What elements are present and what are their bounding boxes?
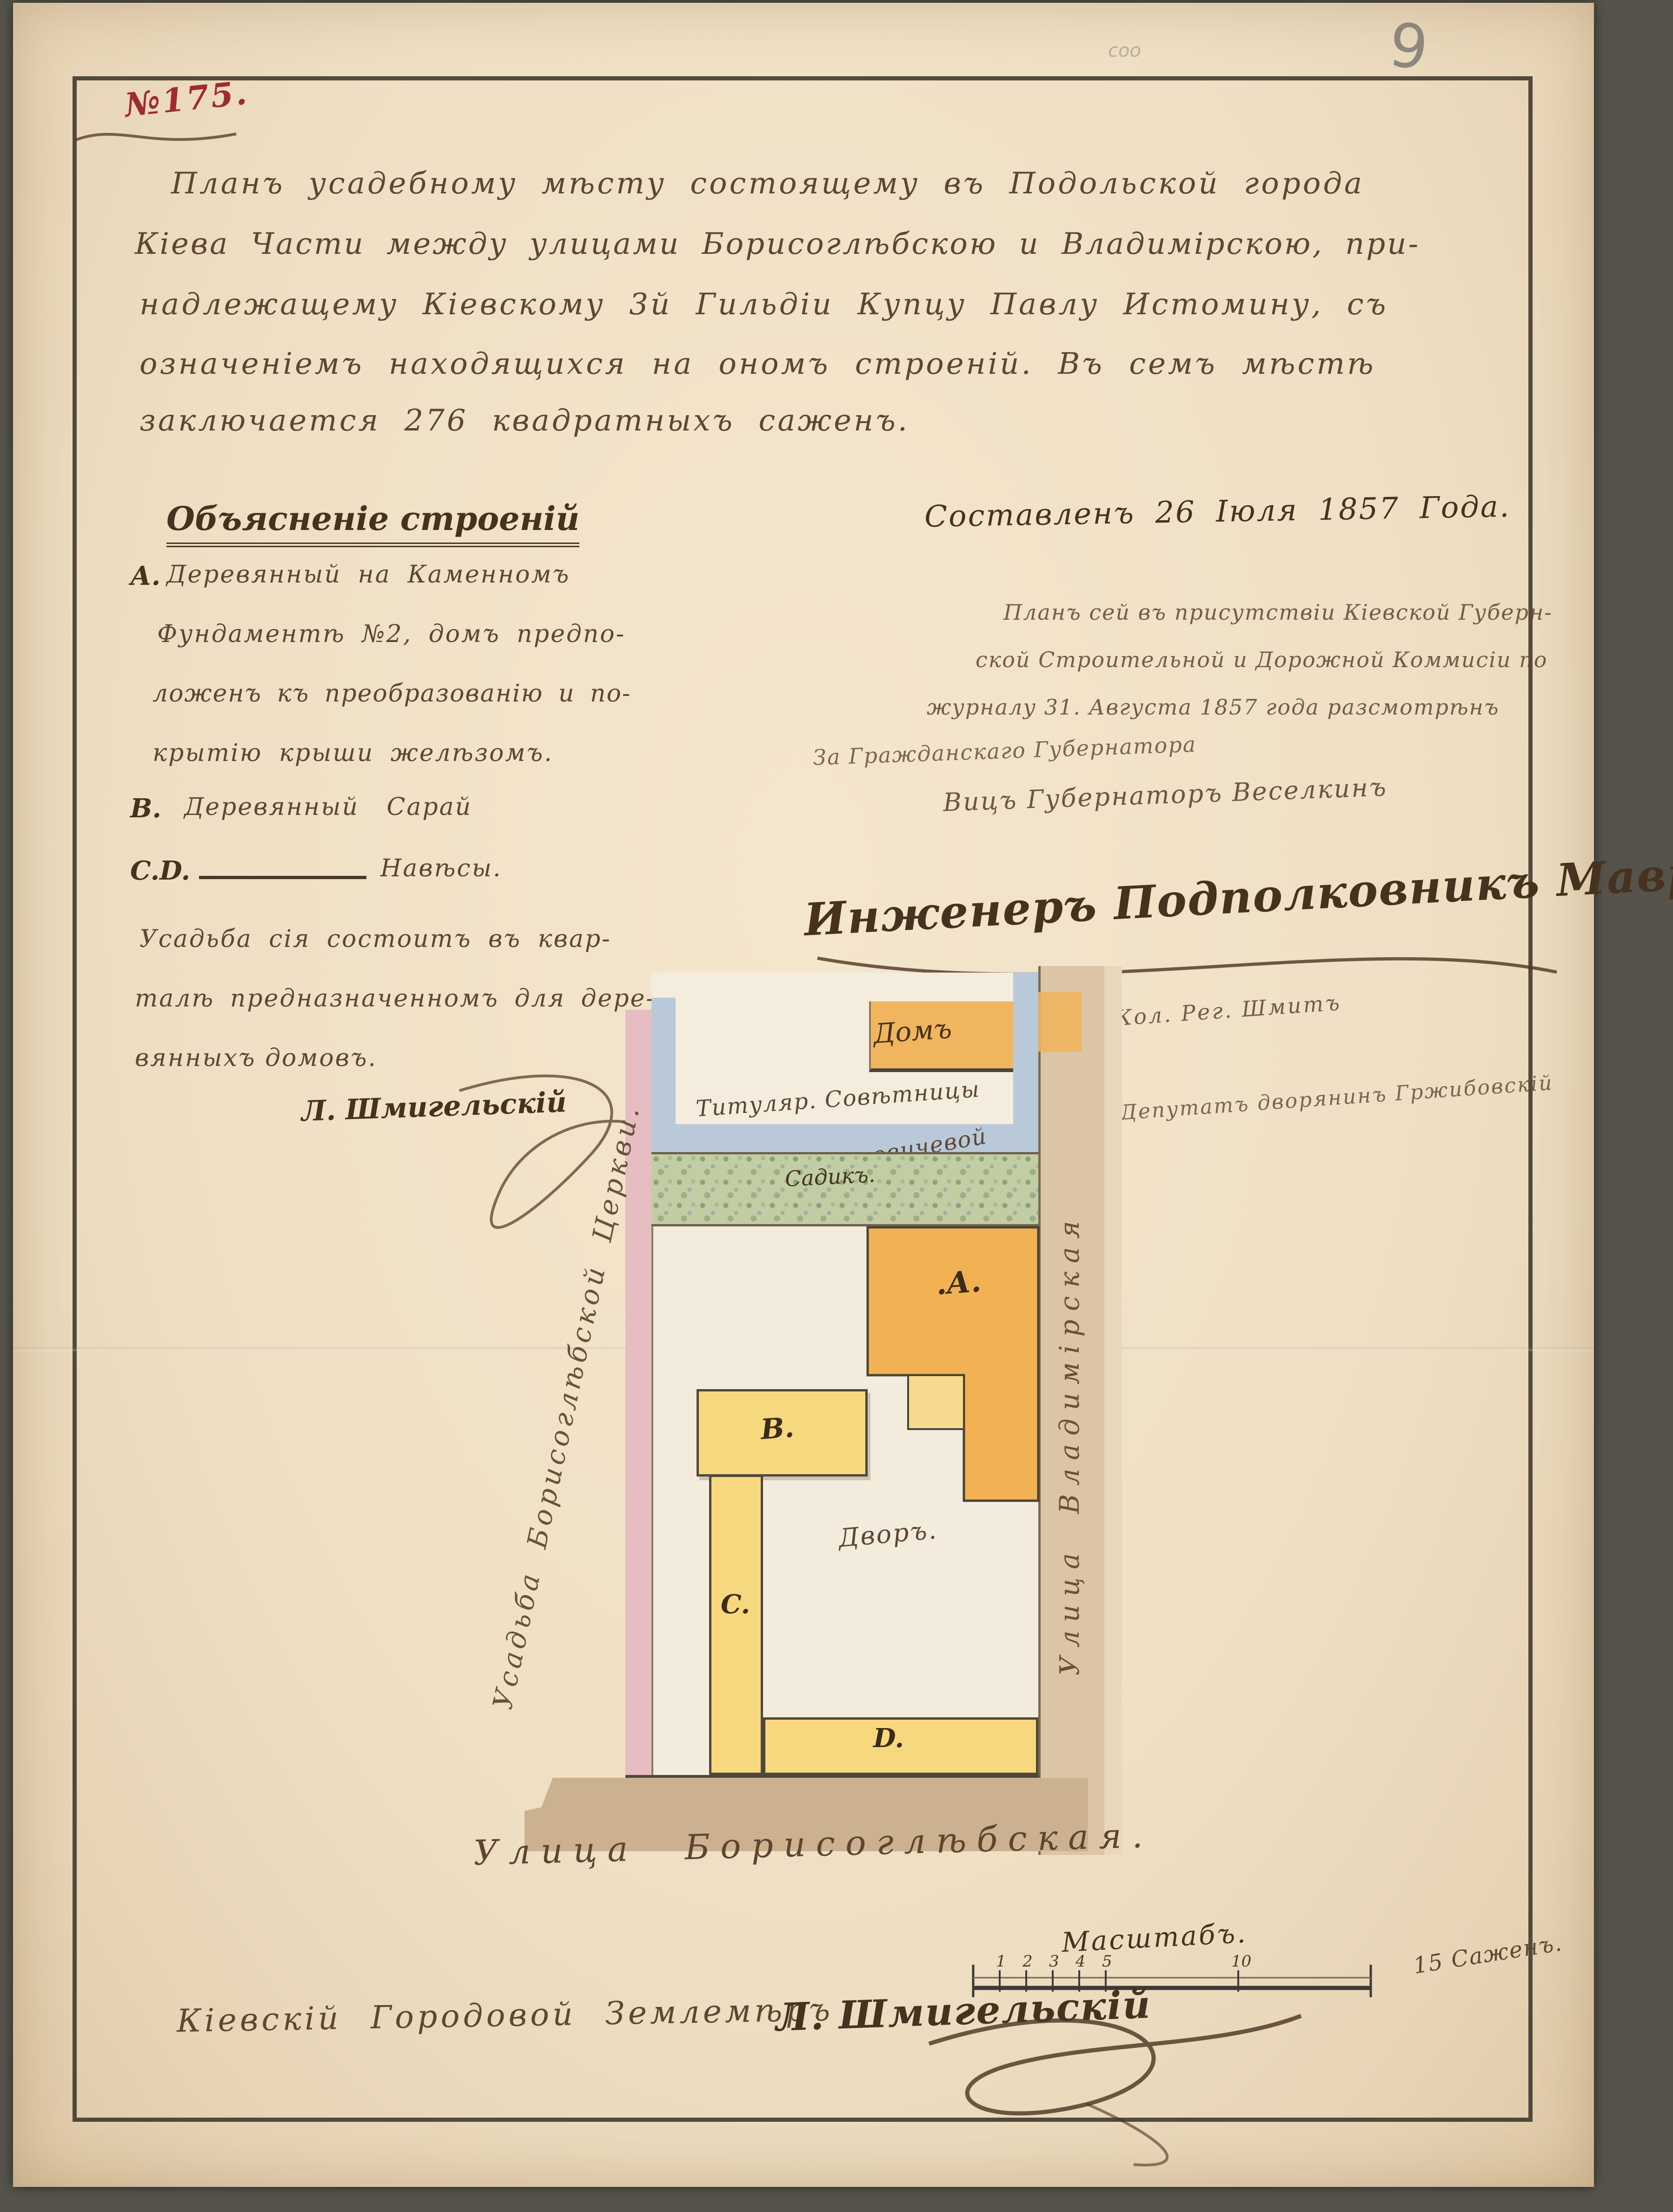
scale-tick: 5 bbox=[1102, 1952, 1112, 1971]
scale-tick: 2 bbox=[1022, 1952, 1033, 1971]
neighbor-border-right bbox=[1013, 973, 1038, 1152]
legend-a-marker: А. bbox=[130, 561, 160, 591]
review-line: журналу 31. Августа 1857 года разсмотрѣн… bbox=[927, 695, 1499, 720]
title-line: заключается 276 квадратныхъ саженъ. bbox=[139, 404, 910, 438]
legend-note-line: Усадьба сія состоитъ въ квар- bbox=[139, 925, 611, 953]
building-c bbox=[709, 1475, 763, 1775]
street-vladimirskaya-label: Улица Владимірская bbox=[1054, 1067, 1096, 1821]
register-number-flourish bbox=[69, 120, 246, 157]
scale-tick: 4 bbox=[1075, 1952, 1086, 1971]
building-a-label: .А. bbox=[935, 1264, 983, 1302]
building-c-label: C. bbox=[721, 1589, 750, 1620]
legend-cd-marker: C.D. bbox=[130, 855, 190, 886]
scale-tick: 1 bbox=[996, 1952, 1006, 1971]
legend-a-line: ложенъ къ преобразованію и по- bbox=[153, 680, 631, 708]
legend-b-text: Деревянный Сарай bbox=[184, 793, 472, 821]
building-d-label: D. bbox=[873, 1723, 904, 1754]
review-line: Планъ сей въ присутствіи Кіевской Губерн… bbox=[1003, 600, 1553, 625]
title-line: означеніемъ находящихся на ономъ строені… bbox=[139, 347, 1376, 381]
title-line: надлежащему Кіевскому 3й Гильдіи Купцу П… bbox=[139, 287, 1388, 322]
plot-bottom-line bbox=[625, 1775, 1039, 1778]
street-vladimirskaya-band-outer bbox=[1104, 966, 1122, 1855]
legend-b-marker: В. bbox=[130, 793, 161, 824]
legend-cd-text: Навѣсы. bbox=[380, 854, 502, 882]
surveyor-paraph bbox=[873, 1997, 1338, 2183]
legend-a-line: Деревянный на Каменномъ bbox=[166, 561, 570, 589]
scale-tick: 10 bbox=[1231, 1952, 1251, 1971]
title-line: Планъ усадебному мѣсту состоящему въ Под… bbox=[171, 166, 1364, 201]
garden-label: Садикъ. bbox=[784, 1162, 876, 1192]
building-b-label: В. bbox=[760, 1411, 795, 1446]
legend-a-line: крытію крыши желѣзомъ. bbox=[153, 739, 553, 767]
legend-a-line: Фундаментѣ №2, домъ предпо- bbox=[157, 620, 625, 648]
legend-note-line: талѣ предназначенномъ для дере- bbox=[135, 985, 656, 1013]
legend-header: Объясненіе строеній bbox=[166, 499, 579, 547]
neighbor-house-label: Домъ bbox=[872, 1013, 953, 1050]
pencil-scribble: соо bbox=[1108, 40, 1141, 61]
review-line: ской Строительной и Дорожной Коммисіи по bbox=[976, 647, 1547, 672]
scale-tick: 3 bbox=[1049, 1952, 1059, 1971]
pencil-page-number: 9 bbox=[1385, 9, 1432, 84]
legend-cd-dash bbox=[199, 876, 366, 879]
document-sheet: №175. 9 соо Планъ усадебному мѣсту состо… bbox=[13, 3, 1594, 2187]
title-line: Кіева Части между улицами Борисоглѣбскою… bbox=[135, 227, 1420, 261]
legend-note-line: вянныхъ домовъ. bbox=[135, 1044, 377, 1072]
